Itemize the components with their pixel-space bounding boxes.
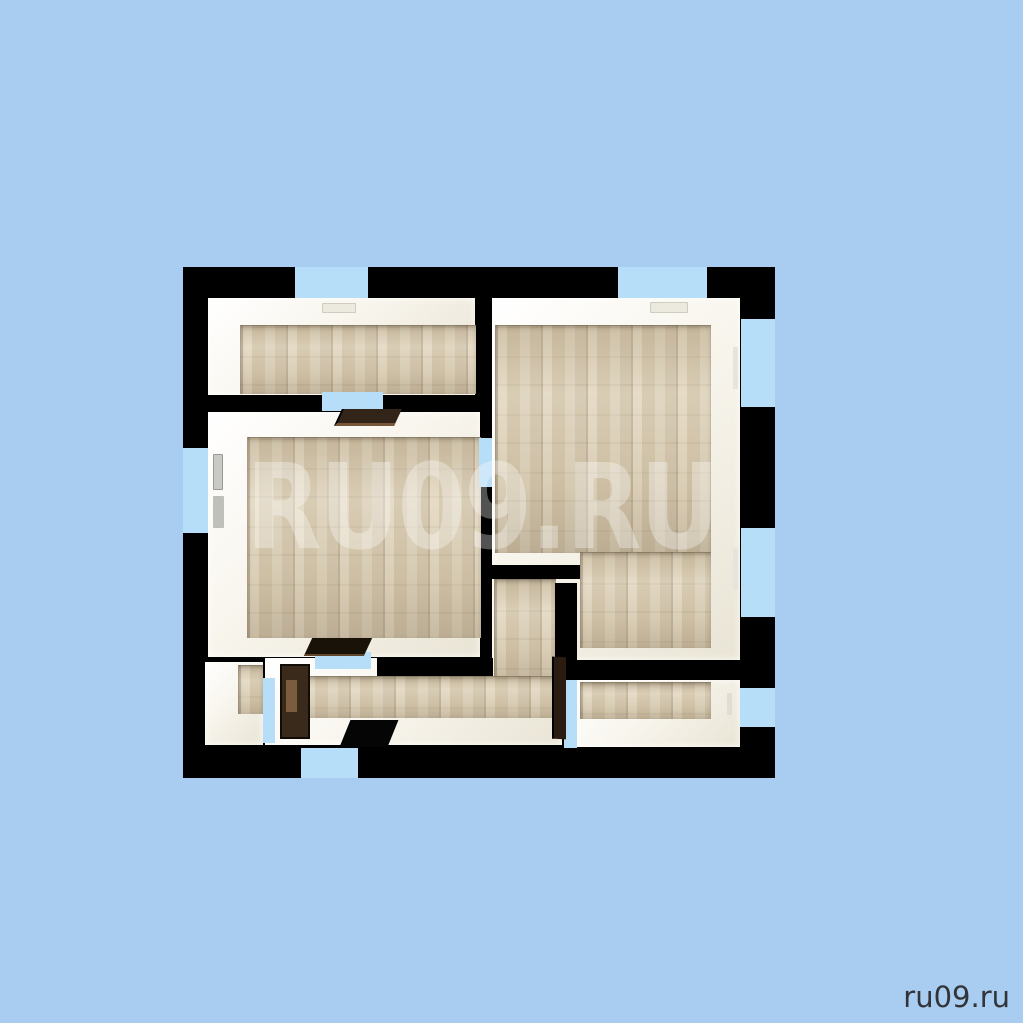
radiator — [733, 548, 738, 590]
wall-above-hallway — [377, 658, 493, 676]
window-opening — [301, 748, 358, 778]
floor-bottom-right-room — [580, 682, 711, 719]
floor-top-right-room — [495, 325, 711, 553]
floor-top-right-room-lower — [580, 552, 711, 648]
floor-plan-image: RU09.RU ru09.ru — [0, 0, 1023, 1023]
window-opening — [295, 267, 368, 300]
floor-top-left-room — [240, 325, 476, 394]
door-leaf-bottom-left — [280, 664, 310, 739]
window-opening — [740, 688, 775, 727]
door-opening — [479, 438, 492, 487]
ceiling-fixture — [322, 303, 356, 313]
door-leaf-hall — [552, 657, 566, 740]
radiator — [213, 454, 223, 490]
window-opening — [183, 448, 208, 533]
ceiling-fixture — [650, 302, 688, 313]
door-leaf-top — [334, 409, 402, 426]
radiator — [733, 347, 738, 389]
radiator — [727, 693, 732, 715]
wall-above-hall-passage — [492, 565, 580, 579]
floor-middle-left-room — [247, 437, 481, 638]
window-opening — [741, 319, 775, 407]
door-panel — [286, 680, 297, 712]
window-opening — [618, 267, 707, 299]
radiator — [213, 496, 224, 528]
site-label: ru09.ru — [903, 980, 1010, 1014]
door-leaf-middle — [304, 638, 372, 656]
window-opening — [741, 528, 775, 617]
door-opening — [263, 678, 275, 743]
floor-hallway — [303, 676, 556, 718]
floor-hall-passage — [494, 579, 556, 679]
floor-bottom-left-room — [238, 665, 263, 714]
